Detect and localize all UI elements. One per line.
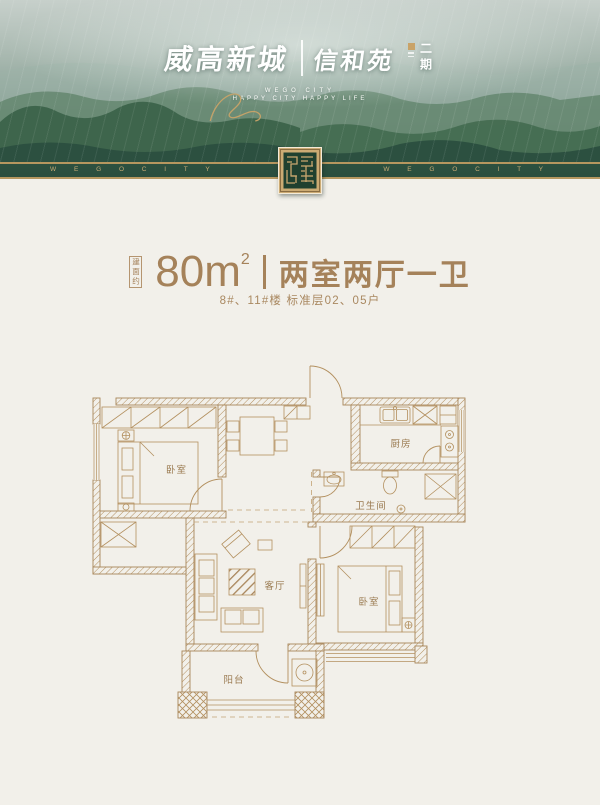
gold-script-flourish-icon: [200, 87, 278, 127]
area-value: 80m2: [155, 250, 250, 294]
layout-title: 两室两厅一卫: [279, 250, 471, 294]
room-label-living-room: 客厅: [264, 580, 285, 592]
phase-label: 二期: [418, 42, 435, 74]
logo-chinese-row: 威高新城 信和苑 二期: [165, 38, 434, 78]
kitchen-counter: [360, 406, 456, 425]
bedroom1-nightstand-top: [118, 430, 134, 441]
headline-divider: [263, 255, 266, 289]
room-label-bedroom-2: 卧室: [358, 596, 379, 608]
room-label-kitchen: 厨房: [390, 438, 411, 450]
bathroom-toilet: [382, 471, 398, 494]
logo-english-block: WEGO CITY HAPPY CITY HAPPY LIFE: [233, 87, 368, 104]
phase-seal-icon: [408, 43, 415, 57]
unit-subtitle: 8#、11#楼 标准层02、05户: [0, 292, 600, 308]
bedroom2-nightstand: [402, 618, 415, 632]
area-number: 80: [155, 250, 204, 294]
area-prefix-label: 建面约: [132, 258, 140, 287]
duct-shaft: [425, 474, 456, 499]
kitchen-stove: [441, 426, 458, 457]
area-unit: m: [204, 250, 241, 294]
living-coffee-table: [229, 569, 255, 595]
room-label-balcony: 阳台: [223, 674, 244, 686]
phase-block: 二期: [408, 42, 435, 74]
dining-table: [227, 417, 287, 455]
balcony-washer: [292, 659, 317, 686]
forest-photo: 威高新城 信和苑 二期 WEGO CITY HAPPY CITY HAPPY L…: [0, 0, 600, 162]
band-text-left: W E G O C I T Y: [50, 167, 217, 174]
band-text-right: W E G O C I T Y: [383, 167, 550, 174]
room-label-bedroom-1: 卧室: [166, 464, 187, 476]
bedroom2-dresser: [317, 564, 324, 616]
poster-page: 威高新城 信和苑 二期 WEGO CITY HAPPY CITY HAPPY L…: [0, 0, 600, 805]
sub-brand-name: 信和苑: [311, 41, 397, 76]
maze-seal-icon: [278, 147, 322, 194]
living-tv: [300, 564, 306, 608]
bedroom2-wardrobe: [350, 526, 415, 548]
unit-headline: 建面约 80m2 两室两厅一卫: [0, 250, 600, 294]
floor-plan: 卧室 厨房 卫生间 客厅 卧室 阳台: [88, 362, 473, 720]
area-superscript: 2: [241, 252, 250, 268]
living-sofa: [195, 554, 217, 620]
logo-lockup: 威高新城 信和苑 二期 WEGO CITY HAPPY CITY HAPPY L…: [0, 38, 600, 104]
entry-cabinet: [284, 406, 310, 419]
logo-divider: [301, 40, 303, 76]
bay-window: [101, 522, 136, 547]
bathroom-drain: [397, 505, 405, 513]
bedroom1-wardrobe: [102, 407, 216, 428]
brand-name: 威高新城: [163, 38, 293, 78]
living-loveseat: [221, 608, 263, 632]
windows: [93, 410, 465, 710]
bathroom-sink: [324, 472, 344, 486]
living-armchair: [222, 530, 250, 558]
room-label-bathroom: 卫生间: [355, 500, 387, 512]
area-prefix-box: 建面约: [129, 256, 142, 288]
living-side-table: [258, 540, 272, 550]
